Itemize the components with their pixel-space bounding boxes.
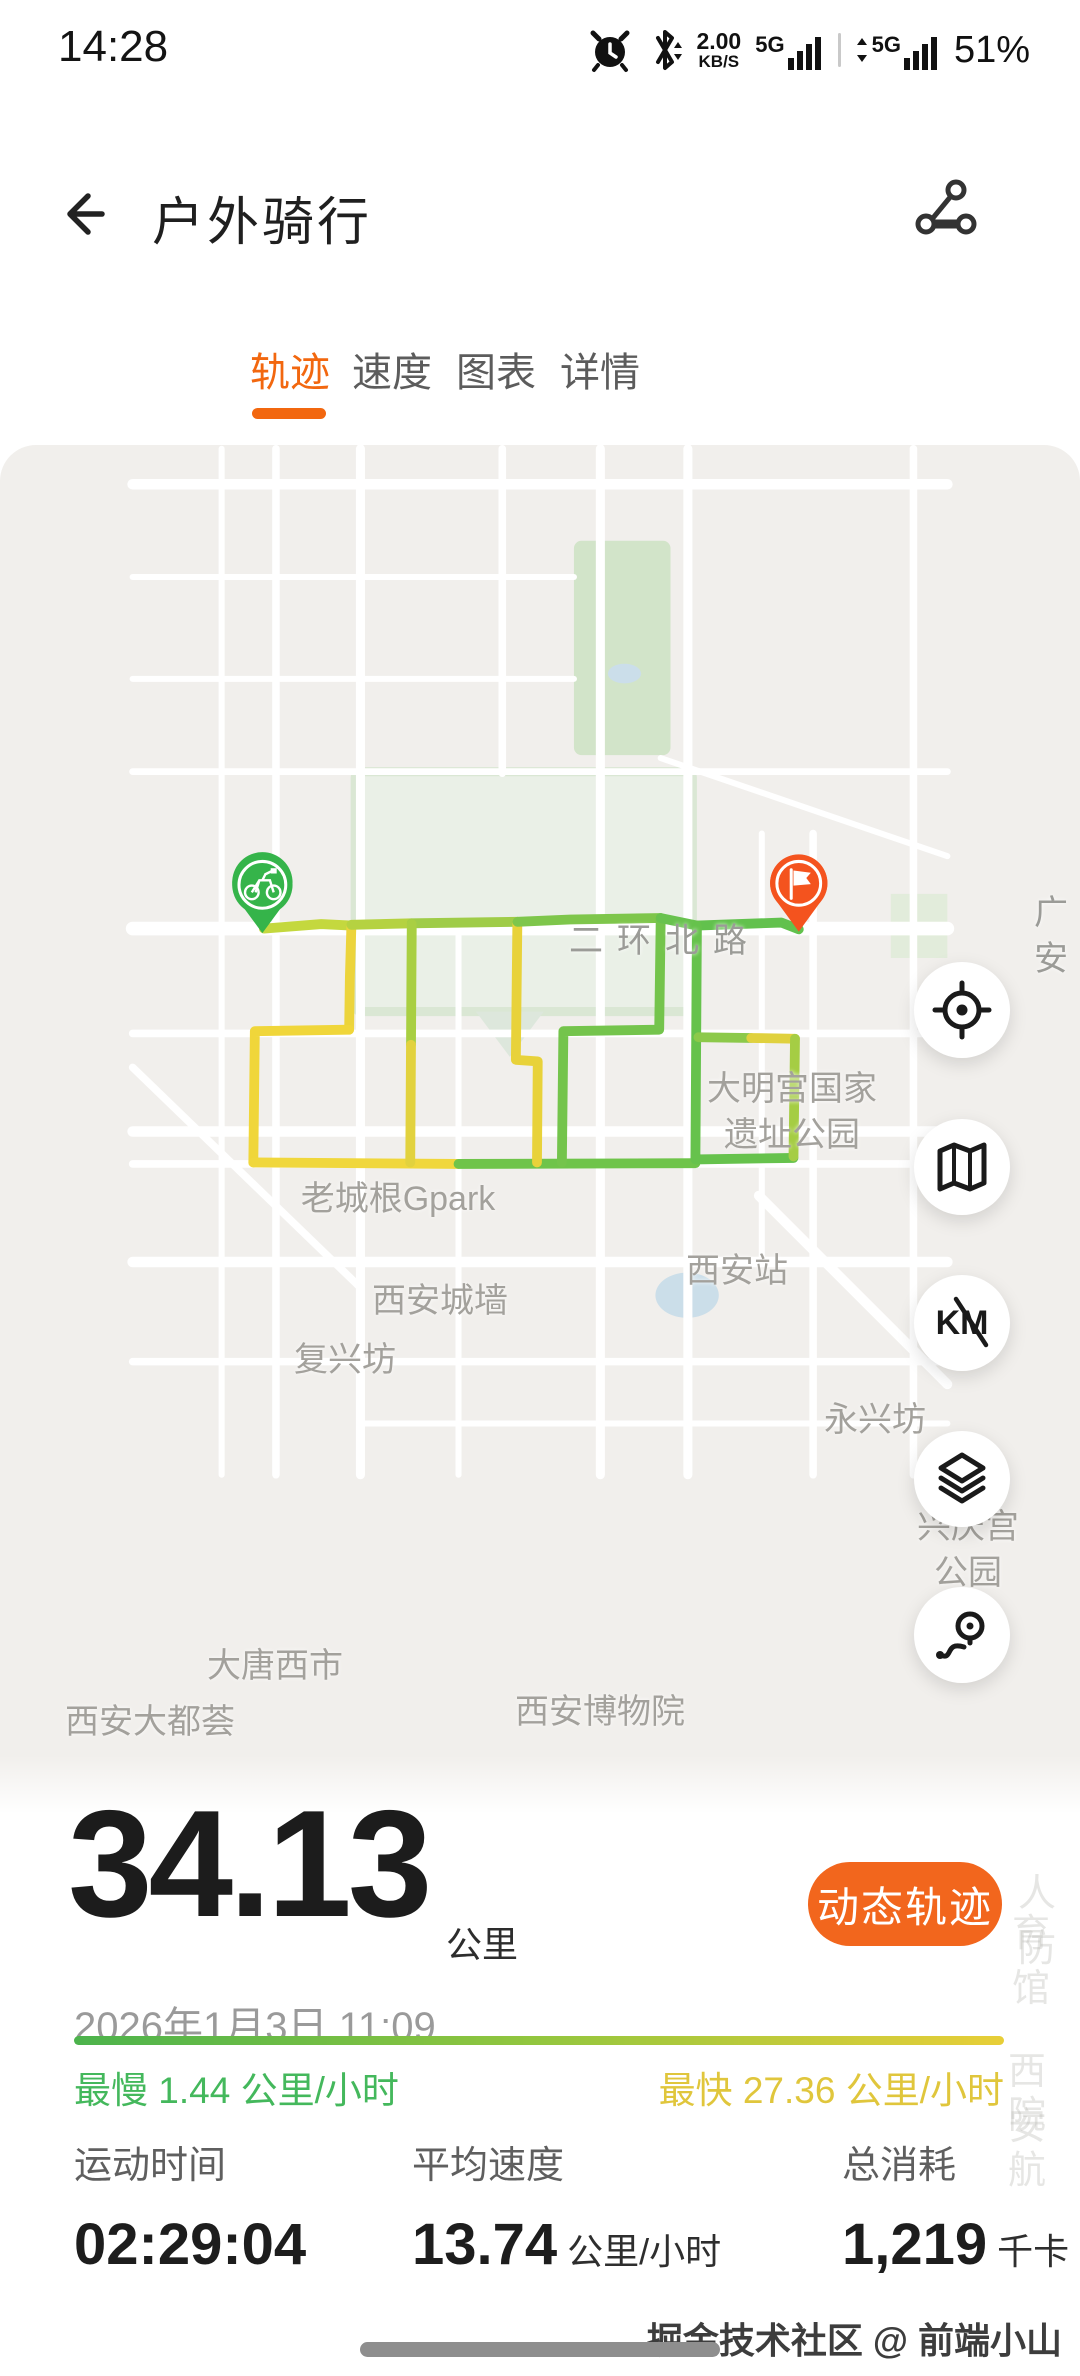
map-label: 西安博物院 <box>515 1690 685 1736</box>
status-time: 14:28 <box>58 22 168 72</box>
active-tab-underline <box>252 408 326 419</box>
map-label: 广安 <box>1034 891 1080 983</box>
tab-charts[interactable]: 图表 <box>456 340 536 398</box>
metric-label: 运动时间 <box>74 2134 306 2189</box>
locate-button[interactable] <box>914 962 1010 1058</box>
sim2-signal: 5G <box>855 30 940 70</box>
slowest-speed: 最慢 1.44 公里/小时 <box>74 2060 399 2114</box>
alarm-icon <box>588 26 632 74</box>
ghost-map-text: 育馆 <box>1012 1902 1080 2012</box>
speed-unit: 公里/小时 <box>846 2070 1004 2111</box>
sim1-signal: 5G <box>755 30 823 70</box>
route-map[interactable]: 二环北路 广安 大明宫国家 遗址公园 老城根Gpark 西安站 西安城墙 复兴坊… <box>0 445 1080 1812</box>
map-label: 西安大都荟 <box>65 1700 235 1746</box>
status-divider <box>838 33 841 67</box>
metric-label: 总消耗 <box>842 2134 1069 2189</box>
bluetooth-icon <box>646 26 682 74</box>
layers-icon <box>931 1448 993 1510</box>
slowest-label: 最慢 <box>74 2070 148 2111</box>
start-marker-bicycle-icon <box>232 852 292 933</box>
battery-percent: 51% <box>954 29 1030 72</box>
fastest-label: 最快 <box>659 2070 733 2111</box>
km-marker-toggle-button[interactable]: KM <box>914 1275 1010 1371</box>
layers-button[interactable] <box>914 1431 1010 1527</box>
km-toggle-icon: KM <box>930 1293 994 1353</box>
map-label: 大唐西市 <box>207 1644 343 1690</box>
route-pin-icon <box>931 1604 993 1666</box>
tab-track[interactable]: 轨迹 <box>250 340 330 398</box>
metric-calories: 总消耗 1,219千卡 <box>842 2134 1069 2278</box>
map-label: 复兴坊 <box>294 1338 396 1384</box>
metric-value: 02:29:04 <box>74 2212 306 2277</box>
speed-unit: 公里/小时 <box>241 2070 399 2111</box>
status-icons: 2.00 KB/S 5G 5G 51% <box>588 22 1030 78</box>
slowest-value: 1.44 <box>158 2070 230 2111</box>
metric-unit: 公里/小时 <box>567 2231 721 2272</box>
back-button[interactable] <box>58 182 122 246</box>
distance-unit: 公里 <box>446 1916 518 1968</box>
signal-bars-icon <box>788 30 824 70</box>
fastest-speed: 最快 27.36 公里/小时 <box>659 2060 1004 2114</box>
dynamic-track-button[interactable]: 动态轨迹 <box>808 1862 1002 1946</box>
fastest-value: 27.36 <box>743 2070 836 2111</box>
home-gesture-handle[interactable] <box>360 2342 720 2357</box>
metric-label: 平均速度 <box>412 2134 721 2189</box>
metric-value: 13.74 <box>412 2212 557 2277</box>
map-canvas <box>0 445 1080 1812</box>
metric-unit: 千卡 <box>997 2231 1069 2272</box>
page-title: 户外骑行 <box>152 180 372 255</box>
map-label: 大明宫国家 遗址公园 <box>707 1067 877 1159</box>
map-label: 西安站 <box>686 1249 788 1295</box>
route-detail-button[interactable] <box>914 1587 1010 1683</box>
signal-bars-icon <box>904 30 940 70</box>
activity-detail-screen: { "colors": { "accent_orange": "#F2670F"… <box>0 0 1080 2376</box>
locate-icon <box>932 980 992 1040</box>
map-label: 西安城墙 <box>372 1279 508 1325</box>
metric-value: 1,219 <box>842 2212 987 2277</box>
network-speed: 2.00 KB/S <box>696 30 741 70</box>
map-label: 二环北路 <box>569 919 761 965</box>
summary-panel: 人防 育馆 西安 院航 34.13 公里 动态轨迹 2026年1月3日 11:0… <box>0 1812 1080 2376</box>
tab-details[interactable]: 详情 <box>560 340 640 398</box>
share-route-icon[interactable] <box>912 178 980 246</box>
map-label: 永兴坊 <box>824 1398 926 1444</box>
map-mode-button[interactable] <box>914 1119 1010 1215</box>
speed-gradient-bar <box>74 2036 1004 2045</box>
metric-duration: 运动时间 02:29:04 <box>74 2134 306 2278</box>
metric-avg-speed: 平均速度 13.74公里/小时 <box>412 2134 721 2278</box>
tab-speed[interactable]: 速度 <box>352 340 432 398</box>
updown-arrows-icon <box>855 30 869 70</box>
map-label: 老城根Gpark <box>301 1177 496 1223</box>
distance-value: 34.13 <box>68 1788 428 1940</box>
map-icon <box>932 1137 992 1197</box>
